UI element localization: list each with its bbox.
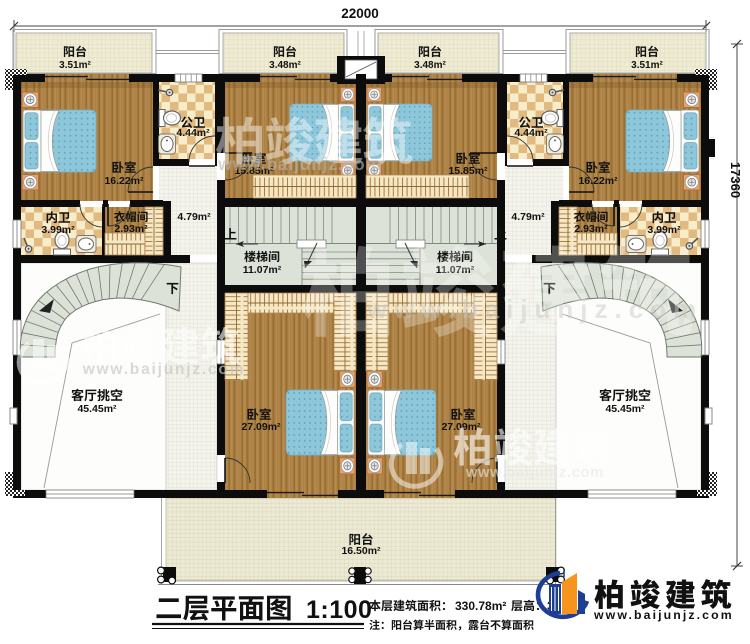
svg-text:4.79m²: 4.79m² bbox=[177, 211, 211, 223]
svg-text:27.09m²: 27.09m² bbox=[241, 421, 281, 433]
svg-text:www.baijunjz.com: www.baijunjz.com bbox=[82, 361, 246, 378]
svg-text:45.45m²: 45.45m² bbox=[605, 403, 645, 415]
svg-text:www.baijunjz.com: www.baijunjz.com bbox=[366, 294, 703, 324]
svg-text:22000: 22000 bbox=[341, 6, 379, 21]
svg-text:2.93m²: 2.93m² bbox=[114, 223, 148, 235]
svg-text:16.22m²: 16.22m² bbox=[578, 175, 618, 187]
svg-text:16.22m²: 16.22m² bbox=[104, 175, 144, 187]
svg-text:16.50m²: 16.50m² bbox=[341, 545, 381, 557]
svg-text:45.45m²: 45.45m² bbox=[77, 403, 117, 415]
svg-text:15.85m²: 15.85m² bbox=[448, 165, 488, 177]
svg-text:3.51m²: 3.51m² bbox=[59, 60, 91, 71]
svg-text:4.44m²: 4.44m² bbox=[176, 127, 210, 139]
svg-text:4.79m²: 4.79m² bbox=[511, 211, 545, 223]
svg-text:2.93m²: 2.93m² bbox=[574, 223, 608, 235]
svg-text:www.baijunjz.com: www.baijunjz.com bbox=[593, 608, 734, 622]
svg-text:1:100: 1:100 bbox=[306, 596, 372, 624]
svg-text:3.51m²: 3.51m² bbox=[631, 60, 663, 71]
svg-text:11.07m²: 11.07m² bbox=[243, 264, 282, 276]
svg-text:17360: 17360 bbox=[728, 162, 743, 198]
svg-text:330.78m²: 330.78m² bbox=[455, 599, 506, 613]
svg-text:3.48m²: 3.48m² bbox=[269, 60, 301, 71]
svg-text:3.48m²: 3.48m² bbox=[414, 60, 446, 71]
svg-text:www.baijunjz.com: www.baijunjz.com bbox=[465, 465, 604, 481]
svg-text:3.99m²: 3.99m² bbox=[647, 224, 681, 236]
svg-text:4.44m²: 4.44m² bbox=[514, 127, 548, 139]
svg-text:www.baijunjz.com: www.baijunjz.com bbox=[217, 154, 382, 174]
svg-text:3.99m²: 3.99m² bbox=[41, 224, 75, 236]
